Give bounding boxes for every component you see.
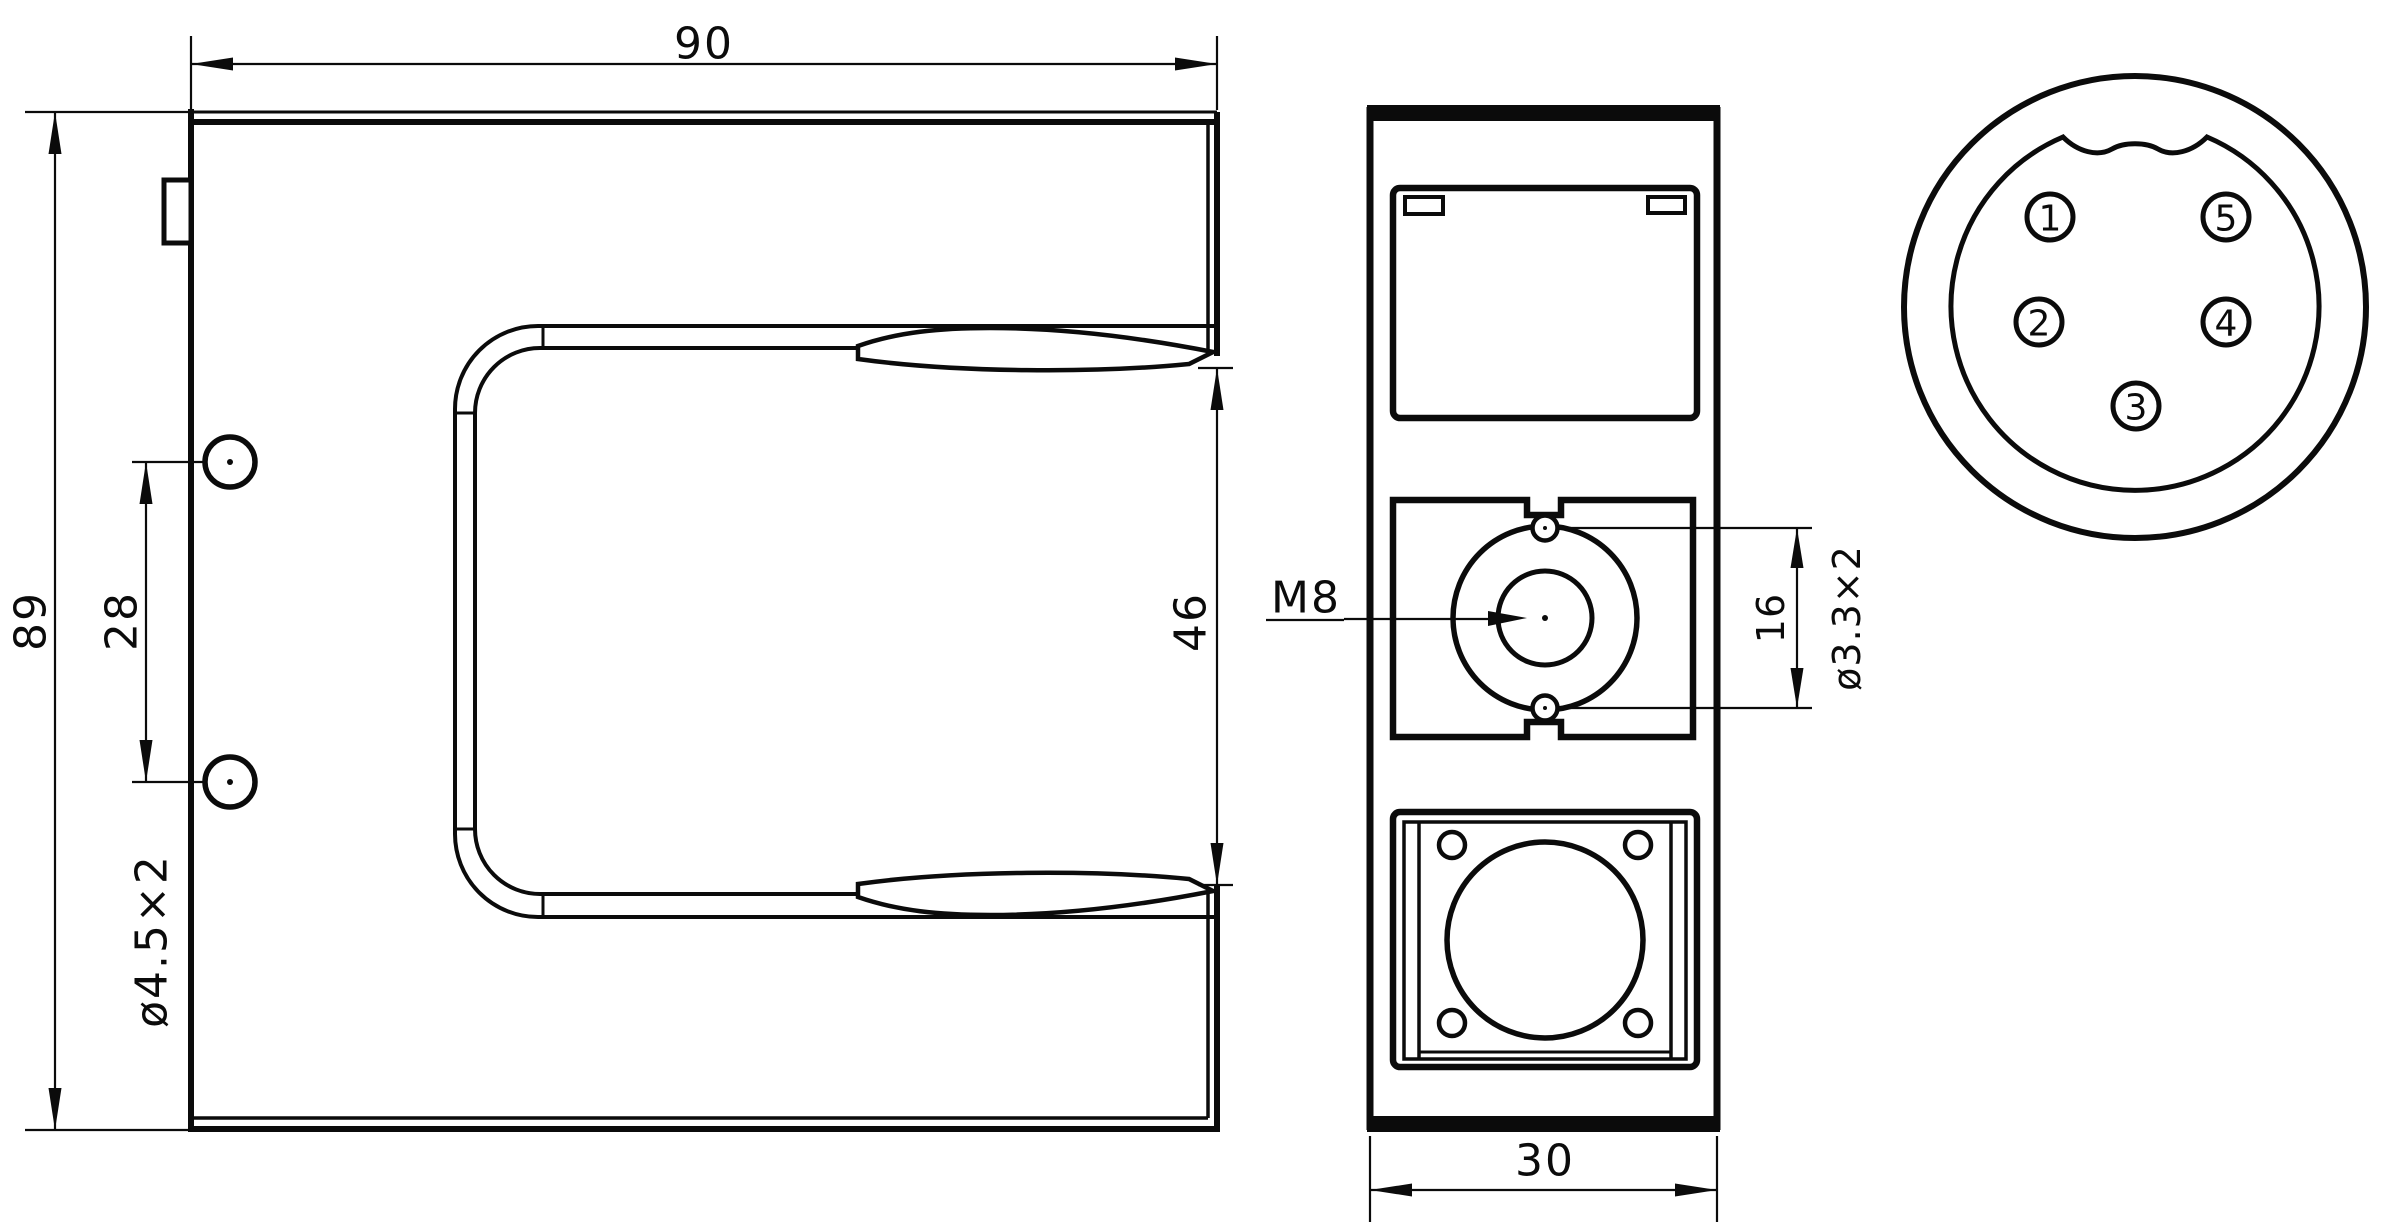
flange-screw-tr xyxy=(1625,832,1651,858)
arrow-28-top xyxy=(140,462,153,504)
arrow-28-bottom xyxy=(140,740,153,782)
pin-5-label: 5 xyxy=(2215,199,2238,240)
connector-inner-circle-keyway xyxy=(1951,137,2319,490)
left-tab xyxy=(164,180,191,243)
arrow-90-right xyxy=(1175,58,1217,71)
window-clip-right xyxy=(1648,197,1685,213)
hole-diameter-note: ø4.5×2 xyxy=(127,854,178,1028)
arrow-16-bottom xyxy=(1791,668,1804,708)
sensor-dimension-drawing: 90 89 28 ø4.5×2 46 xyxy=(0,0,2400,1227)
slot-outer-contour xyxy=(455,326,1217,917)
pin-1-label: 1 xyxy=(2039,199,2062,240)
dim-side-hole-spacing-label: 16 xyxy=(1749,593,1793,643)
boss-center-dot xyxy=(1542,615,1548,621)
hole2-center-dot xyxy=(227,779,233,785)
side-hole-diameter-note: ø3.3×2 xyxy=(1825,545,1869,691)
arrow-89-top xyxy=(49,112,62,154)
slot-inner-contour xyxy=(475,348,857,894)
pin-3-label: 3 xyxy=(2125,388,2148,429)
small-hole-top-dot xyxy=(1543,526,1547,530)
arrow-90-left xyxy=(191,58,233,71)
arrow-16-top xyxy=(1791,528,1804,568)
top-window xyxy=(1393,188,1697,418)
flange-screw-br xyxy=(1625,1010,1651,1036)
flange-screw-bl xyxy=(1439,1010,1465,1036)
dim-width-label: 90 xyxy=(674,19,734,70)
connector-barrel-circle xyxy=(1447,842,1643,1038)
window-clip-left xyxy=(1405,197,1443,214)
arrow-46-top xyxy=(1211,368,1224,410)
dim-depth-label: 30 xyxy=(1515,1136,1575,1187)
pin-4-label: 4 xyxy=(2215,304,2238,345)
arrow-30-right xyxy=(1675,1184,1717,1197)
arrow-30-left xyxy=(1370,1184,1412,1197)
small-hole-bottom-dot xyxy=(1543,706,1547,710)
front-view xyxy=(132,109,1217,1132)
side-top-face xyxy=(1367,105,1720,121)
side-bottom-face xyxy=(1367,1116,1720,1132)
technical-drawing-page: 90 89 28 ø4.5×2 46 xyxy=(0,0,2400,1227)
lower-lens-window xyxy=(858,873,1213,915)
dim-height-label: 89 xyxy=(6,591,57,651)
flange-screw-tl xyxy=(1439,832,1465,858)
connector-pinout-view: 1 2 3 4 5 xyxy=(1904,76,2366,538)
arrow-46-bottom xyxy=(1211,843,1224,885)
arrow-89-bottom xyxy=(49,1088,62,1130)
thread-label: M8 xyxy=(1271,573,1341,624)
hole1-center-dot xyxy=(227,459,233,465)
upper-lens-window xyxy=(858,328,1213,370)
dim-slot-width-label: 46 xyxy=(1166,592,1217,652)
pin-2-label: 2 xyxy=(2028,304,2051,345)
dim-hole-spacing-label: 28 xyxy=(97,591,148,651)
